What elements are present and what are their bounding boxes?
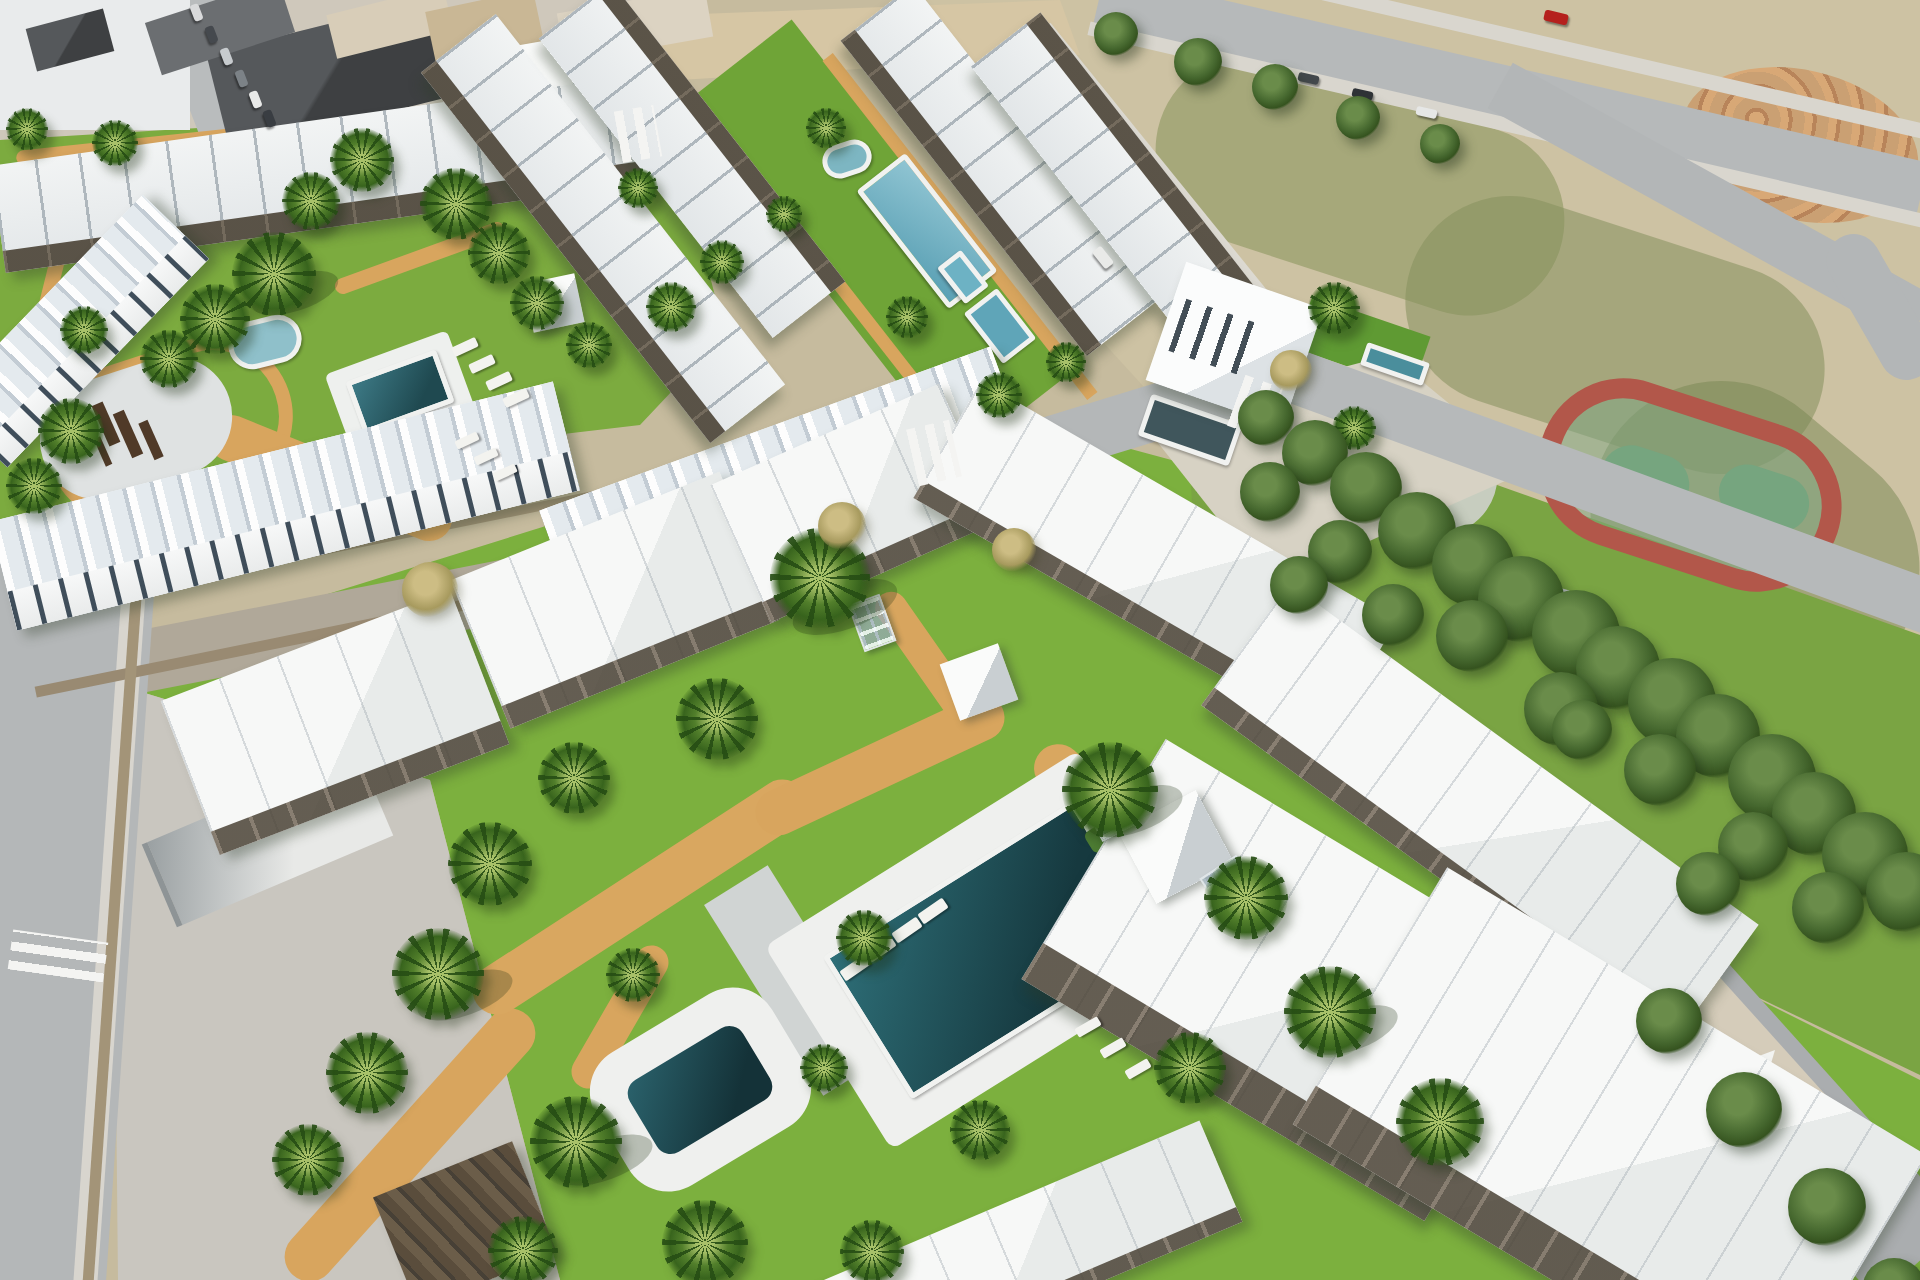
palm (950, 1100, 1010, 1160)
palm (1062, 742, 1158, 838)
palm (1046, 342, 1086, 382)
palm (1284, 966, 1376, 1058)
palm (806, 108, 846, 148)
tan-tree (818, 502, 866, 550)
palm (976, 372, 1022, 418)
palm (840, 1220, 904, 1280)
park-tree (1792, 872, 1864, 944)
palm (330, 128, 394, 192)
palm (886, 296, 928, 338)
palm (140, 330, 198, 388)
palm (6, 458, 62, 514)
roadside-tree (1094, 12, 1138, 56)
park-tree (1270, 556, 1328, 614)
palm (836, 910, 892, 966)
palm (530, 1096, 622, 1188)
palm (60, 306, 108, 354)
park-tree (1362, 584, 1424, 646)
tan-tree (1270, 350, 1312, 392)
park-tree (1624, 734, 1696, 806)
palm (1204, 856, 1288, 940)
palm (272, 1124, 344, 1196)
palm (92, 120, 138, 166)
palm (766, 196, 802, 232)
park-tree (1436, 600, 1508, 672)
palm (392, 928, 484, 1020)
street-tree (1706, 1072, 1782, 1148)
palm (38, 398, 104, 464)
palm (1154, 1032, 1226, 1104)
palm (606, 948, 660, 1002)
palm (448, 822, 532, 906)
palm (488, 1216, 558, 1280)
tan-tree (992, 528, 1036, 572)
street-tree (1636, 988, 1702, 1054)
palm (1308, 282, 1360, 334)
palm (1396, 1078, 1484, 1166)
tan-tree (402, 562, 458, 618)
palm (538, 742, 610, 814)
park-tree (1240, 462, 1300, 522)
roadside-tree (1420, 124, 1460, 164)
palm (676, 678, 758, 760)
palm (646, 282, 696, 332)
palm (662, 1200, 748, 1280)
palm (800, 1044, 848, 1092)
palm (510, 276, 564, 330)
palm (566, 322, 612, 368)
park-tree (1552, 700, 1612, 760)
park-tree (1676, 852, 1740, 916)
palm (700, 240, 744, 284)
palm (618, 168, 658, 208)
palm (326, 1032, 408, 1114)
roadside-tree (1174, 38, 1222, 86)
street-tree (1788, 1168, 1866, 1246)
roadside-tree (1252, 64, 1298, 110)
palm (468, 222, 530, 284)
aerial-development-render (0, 0, 1920, 1280)
roadside-tree (1336, 96, 1380, 140)
palm (6, 108, 48, 150)
palm (282, 172, 340, 230)
